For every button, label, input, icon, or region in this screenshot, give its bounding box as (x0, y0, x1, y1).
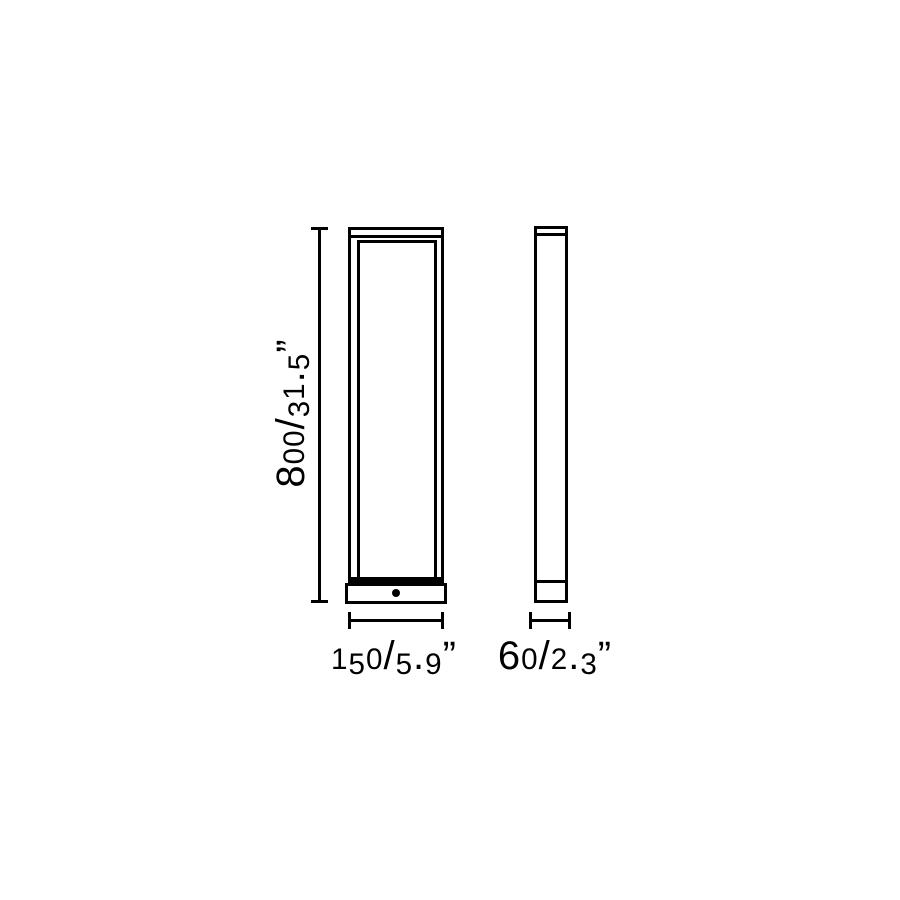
width-dimension-tick-left (348, 612, 351, 629)
front-top-cap-line (351, 235, 441, 238)
height-dimension-line (318, 228, 321, 602)
side-base-line (537, 580, 565, 583)
depth-dimension-tick-left (529, 612, 532, 629)
depth-dimension-tick-right (568, 612, 571, 629)
width-dimension-line (348, 619, 444, 622)
height-dimension-tick-bottom (311, 600, 328, 603)
side-profile (534, 226, 568, 603)
depth-dimension-label: 60/2.3” (455, 632, 655, 680)
height-dimension-tick-top (311, 227, 328, 230)
height-dimension-label: 800/31.5” (269, 243, 313, 583)
depth-dimension-line (529, 619, 571, 622)
dimension-drawing: 800/31.5” 150/5.9” 60/2.3” (0, 0, 900, 900)
side-top-cap-line (537, 233, 565, 236)
width-dimension-tick-right (441, 612, 444, 629)
front-light-panel (357, 240, 437, 580)
front-base-screw-dot (392, 589, 400, 597)
